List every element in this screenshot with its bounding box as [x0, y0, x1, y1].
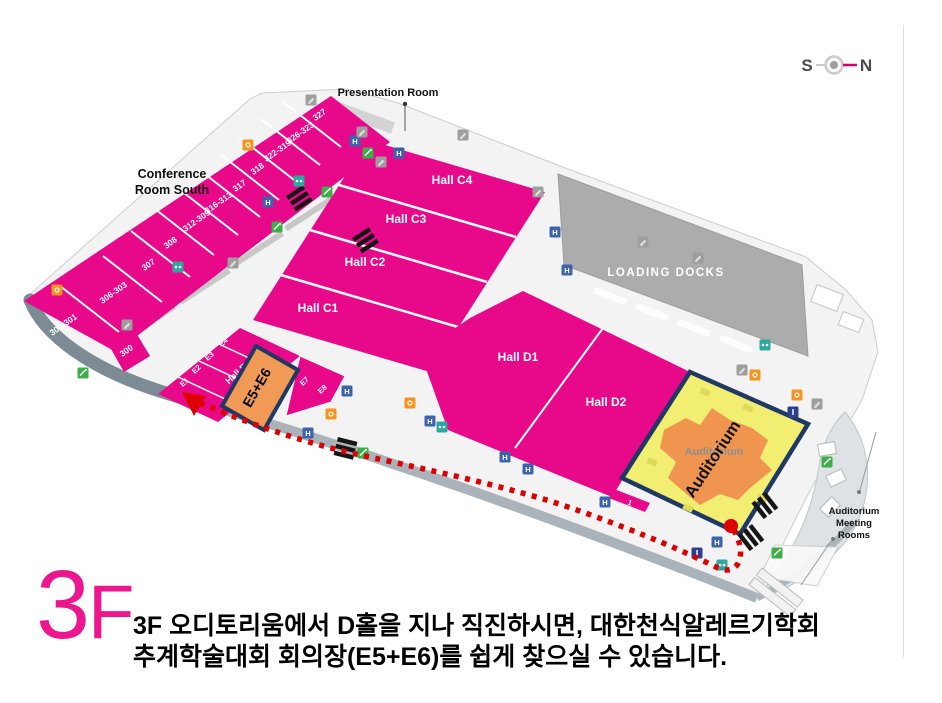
- stairs-icon: [306, 95, 317, 106]
- stairs-icon: [357, 127, 368, 138]
- svg-text:H: H: [344, 387, 349, 396]
- escalator-sign-icon: [822, 457, 833, 468]
- escalator-sign-icon: [78, 368, 89, 379]
- hall-c1-label: Hall C1: [298, 301, 339, 315]
- svg-text:H: H: [305, 429, 310, 438]
- escalator-sign-icon: [772, 548, 783, 559]
- svg-text:H: H: [502, 453, 507, 462]
- elevator-icon: H: [500, 452, 511, 463]
- floor-label-digit: 3: [36, 550, 88, 659]
- floor-label-letter: F: [88, 570, 134, 655]
- svg-text:H: H: [396, 149, 401, 158]
- compass-south-label: S: [801, 56, 812, 75]
- elevator-icon: H: [425, 416, 436, 427]
- compass-north-label: N: [860, 56, 872, 75]
- stairs-icon: [638, 237, 649, 248]
- restroom-icon: [173, 262, 184, 273]
- elevator-icon: H: [342, 386, 353, 397]
- stairs-icon: [458, 130, 469, 141]
- directions-caption: 3F 오디토리움에서 D홀을 지나 직진하시면, 대한천식알레르기학회 추계학술…: [133, 611, 933, 673]
- hall-d1-label: Hall D1: [498, 350, 539, 364]
- svg-text:H: H: [352, 137, 357, 146]
- svg-text:H: H: [602, 498, 607, 507]
- presentation-room-label: Presentation Room: [338, 87, 439, 99]
- amenity-icon: [750, 370, 761, 381]
- svg-text:H: H: [714, 538, 719, 547]
- escalator-sign-icon: [272, 222, 283, 233]
- hall-c2-label: Hall C2: [345, 255, 386, 269]
- elevator-icon: H: [600, 497, 611, 508]
- stairs-icon: [533, 187, 544, 198]
- escalator-sign-icon: [322, 187, 333, 198]
- svg-text:H: H: [265, 198, 270, 207]
- loading-docks-label: LOADING DOCKS: [607, 267, 724, 279]
- route-start-dot: [724, 519, 738, 533]
- elevator-icon: H: [712, 537, 723, 548]
- auditorium-meeting-rooms-label-line3: Rooms: [838, 530, 870, 541]
- amenity-icon: [243, 140, 254, 151]
- elevator-icon: H: [562, 265, 573, 276]
- conference-room-south-label-line2: Room South: [135, 183, 209, 197]
- compass: S N: [801, 56, 872, 75]
- meeting-rooms-callout-dot-upper: [857, 490, 861, 494]
- caption-line-1: 3F 오디토리움에서 D홀을 지나 직진하시면, 대한천식알레르기학회: [133, 611, 933, 642]
- elevator-icon: H: [263, 197, 274, 208]
- slide: LOADING DOCKS 327 326-323 322-319 318 31…: [0, 0, 942, 703]
- amenity-icon: [405, 398, 416, 409]
- floor-label: 3F: [36, 556, 134, 653]
- stairs-icon: [693, 253, 704, 264]
- hall-c3-label: Hall C3: [386, 212, 427, 226]
- compass-hub: [830, 61, 838, 69]
- presentation-room-callout-dot: [403, 102, 407, 106]
- restroom-icon: [294, 176, 305, 187]
- auditorium-meeting-rooms-label-line2: Meeting: [836, 518, 872, 529]
- caption-line-2: 추계학술대회 회의장(E5+E6)를 쉽게 찾으실 수 있습니다.: [133, 642, 933, 673]
- amenity-icon: [792, 390, 803, 401]
- slide-right-border: [903, 25, 904, 657]
- restroom-icon: [760, 340, 771, 351]
- stairs-icon: [376, 157, 387, 168]
- stairs-icon: [812, 399, 823, 410]
- amenity-icon: [326, 409, 337, 420]
- elevator-icon: H: [523, 464, 534, 475]
- auditorium-meeting-rooms-label-line1: Auditorium: [829, 506, 880, 517]
- restroom-icon: [437, 422, 448, 433]
- stairs-icon: [228, 258, 239, 269]
- stairs-icon: [737, 365, 748, 376]
- amenity-icon: [52, 285, 63, 296]
- conference-room-south-label-line1: Conference: [138, 167, 207, 181]
- svg-text:H: H: [552, 228, 557, 237]
- svg-text:H: H: [564, 266, 569, 275]
- meeting-rooms-callout-dot-lower: [831, 537, 835, 541]
- stairs-icon: [122, 320, 133, 331]
- elevator-icon: H: [550, 227, 561, 238]
- escalator-sign-icon: [363, 148, 374, 159]
- hall-c4-label: Hall C4: [432, 173, 473, 187]
- elevator-icon: H: [394, 148, 405, 159]
- hall-d2-label: Hall D2: [586, 395, 627, 409]
- floor-plan-map: LOADING DOCKS 327 326-323 322-319 318 31…: [0, 0, 942, 703]
- svg-text:H: H: [427, 417, 432, 426]
- lift-icon: [788, 407, 799, 418]
- svg-text:H: H: [525, 465, 530, 474]
- elevator-icon: H: [303, 428, 314, 439]
